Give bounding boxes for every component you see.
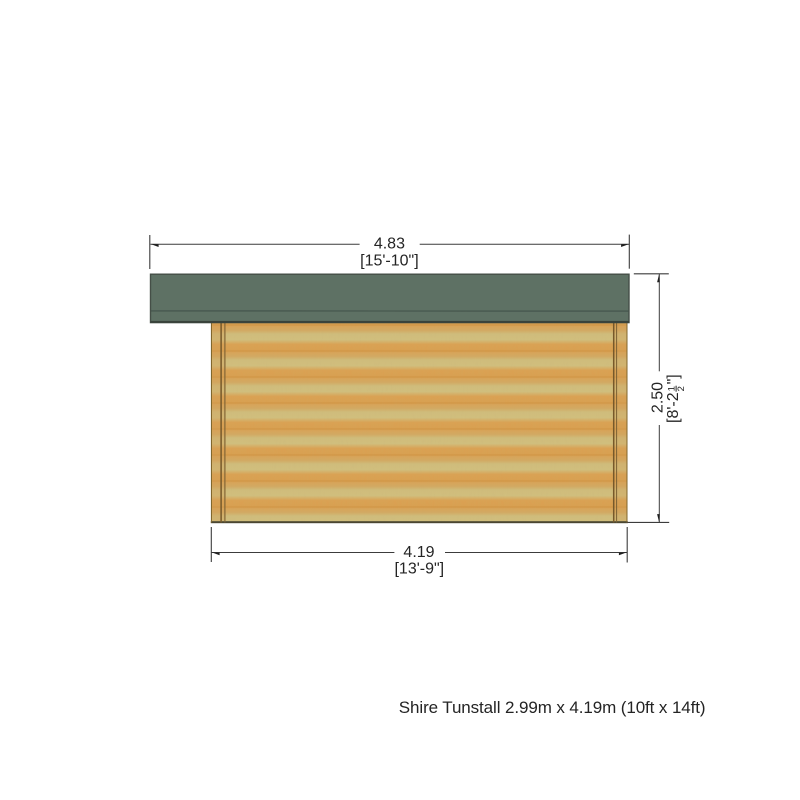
svg-text:[8'-2: [8'-2 [665, 392, 682, 423]
svg-text:[13'-9"]: [13'-9"] [394, 560, 444, 577]
svg-text:[15'-10"]: [15'-10"] [360, 252, 419, 269]
svg-text:4.19: 4.19 [403, 544, 434, 561]
svg-text:4.83: 4.83 [374, 235, 405, 252]
svg-text:2: 2 [676, 386, 687, 391]
svg-text:Shire Tunstall 2.99m x 4.19m (: Shire Tunstall 2.99m x 4.19m (10ft x 14f… [399, 698, 706, 717]
svg-text:"]: "] [665, 374, 682, 384]
